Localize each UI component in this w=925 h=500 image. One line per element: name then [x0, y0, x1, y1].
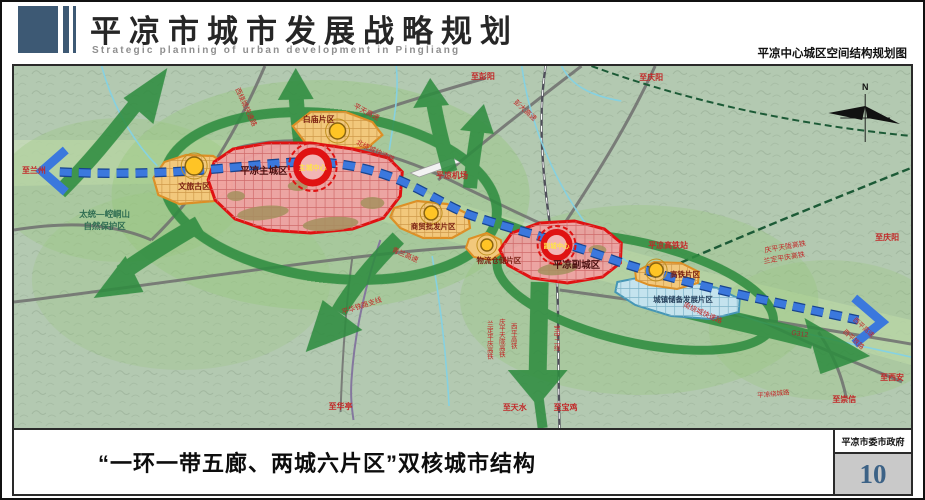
- map-label-nature-reserve-1: 太统—崆峒山: [78, 209, 130, 219]
- map-label-to-lanzhou: 至兰州: [22, 165, 46, 175]
- map-label-reserve-district: 城镇储备发展片区: [653, 294, 713, 304]
- map-label-shangmao-district: 商贸批发片区: [411, 221, 456, 231]
- map-label-to-tianshui: 至天水: [503, 402, 528, 412]
- footer: “一环一带五廊、两城六片区”双核城市结构 平凉市委市政府 10: [14, 430, 911, 494]
- logo-mark: [18, 6, 58, 53]
- map-label-main-city: 平凉主城区: [240, 165, 288, 177]
- map-label-landing-hsr-v: 兰定平庆高铁: [485, 319, 493, 360]
- map-label-baimiao-district: 白庙片区: [303, 114, 335, 124]
- map-label-to-baoji: 至宝鸡: [554, 402, 578, 412]
- map-label-baozhong-line-v: 宝中二线: [552, 324, 560, 352]
- map-label-to-qingyang-right: 至庆阳: [875, 232, 899, 242]
- map-label-sub-center: 副城中心: [544, 241, 570, 250]
- logo-bar: [63, 6, 69, 53]
- plan-sheet: 平凉市城市发展战略规划 Strategic planning of urban …: [0, 0, 925, 500]
- map-title: 平凉中心城区空间结构规划图: [758, 45, 908, 61]
- map-label-to-pengyang: 至彭阳: [471, 71, 495, 81]
- map-label-wenlv-guqu: 文旅古区: [178, 181, 210, 191]
- map-label-xiping-hsr-v: 西平高铁: [509, 323, 517, 351]
- map-label-sub-city: 平凉副城区: [553, 259, 601, 271]
- page-number: 10: [835, 454, 911, 494]
- gov-label: 平凉市委市政府: [835, 430, 911, 454]
- map-label-qingping-hsr-v: 庆平天陇高铁: [497, 317, 505, 358]
- planning-map: 至兰州太统—崆峒山自然保护区西绕城快速路白庙片区平天高速北绕城快速路至彭阳彭大高…: [14, 66, 911, 430]
- page-subtitle-en: Strategic planning of urban development …: [92, 45, 460, 56]
- planning-map-svg: 至兰州太统—崆峒山自然保护区西绕城快速路白庙片区平天高速北绕城快速路至彭阳彭大高…: [14, 66, 911, 428]
- map-label-to-chongxin: 至崇信: [832, 394, 856, 404]
- content-frame: 至兰州太统—崆峒山自然保护区西绕城快速路白庙片区平天高速北绕城快速路至彭阳彭大高…: [12, 64, 913, 496]
- gov-box: 平凉市委市政府 10: [833, 430, 911, 494]
- map-label-compass-n: N: [862, 82, 868, 92]
- map-label-pingliang-airport: 平凉机场: [436, 170, 468, 180]
- logo-bar-thin: [73, 6, 76, 53]
- map-label-to-qingyang-top: 至庆阳: [639, 72, 663, 82]
- map-label-wuliu-district: 物流仓储片区: [476, 255, 521, 265]
- map-label-gaotie-district: 高铁片区: [670, 269, 700, 279]
- map-label-nature-reserve-2: 自然保护区: [83, 221, 126, 231]
- map-label-main-center: 主城中心: [299, 163, 327, 172]
- map-label-to-huating: 至华亭: [329, 401, 353, 411]
- header: 平凉市城市发展战略规划 Strategic planning of urban …: [2, 2, 923, 64]
- structure-caption: “一环一带五廊、两城六片区”双核城市结构: [14, 430, 833, 494]
- map-label-to-xian: 至西安: [880, 372, 904, 382]
- map-label-hsr-station: 平凉高铁站: [648, 240, 688, 250]
